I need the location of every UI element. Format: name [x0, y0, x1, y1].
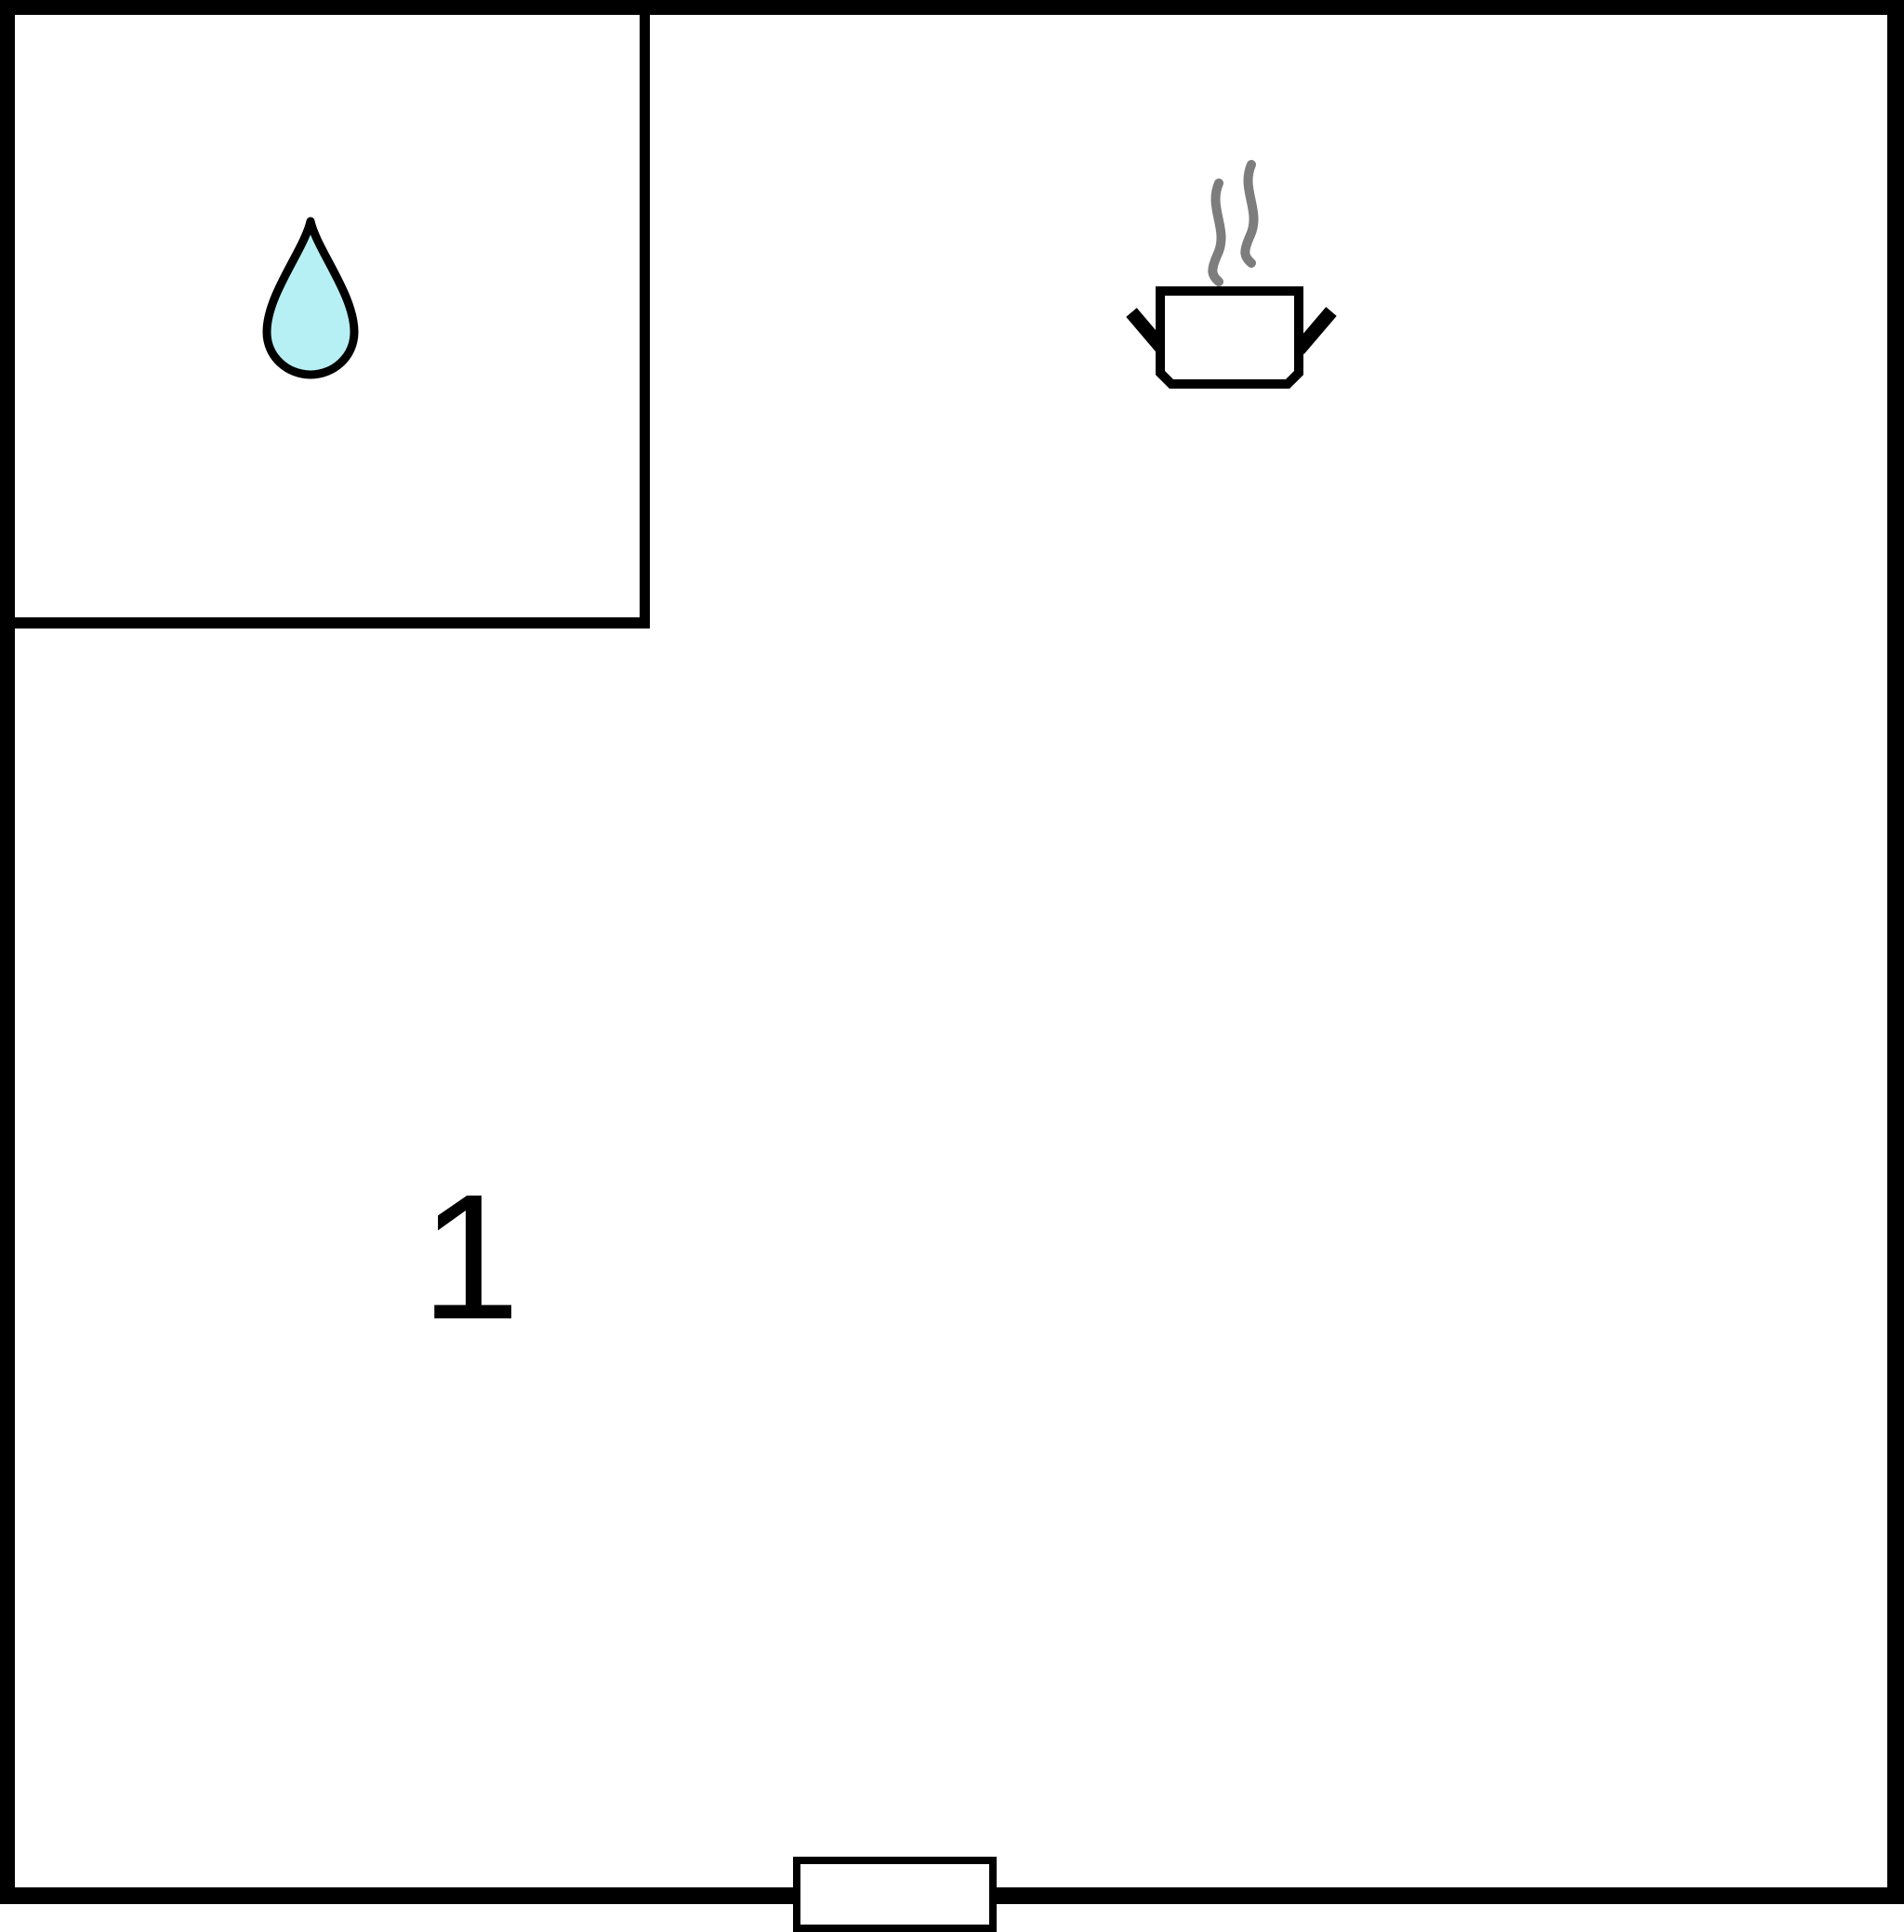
door-marker — [793, 1857, 997, 1932]
water-drop-icon — [260, 214, 361, 383]
outer-wall-left — [0, 0, 15, 1904]
pot-handle-right — [1299, 311, 1331, 350]
pot-body — [1160, 291, 1299, 384]
interior-wall-vertical — [640, 0, 650, 629]
interior-wall-horizontal — [0, 617, 650, 629]
cooking-pot-icon — [1111, 126, 1353, 404]
outer-wall-top — [0, 0, 1904, 15]
steam-icon — [1212, 165, 1253, 282]
floor-plan: 1 — [0, 0, 1904, 1932]
outer-wall-right — [1887, 0, 1904, 1904]
room-number-label: 1 — [390, 1168, 550, 1346]
